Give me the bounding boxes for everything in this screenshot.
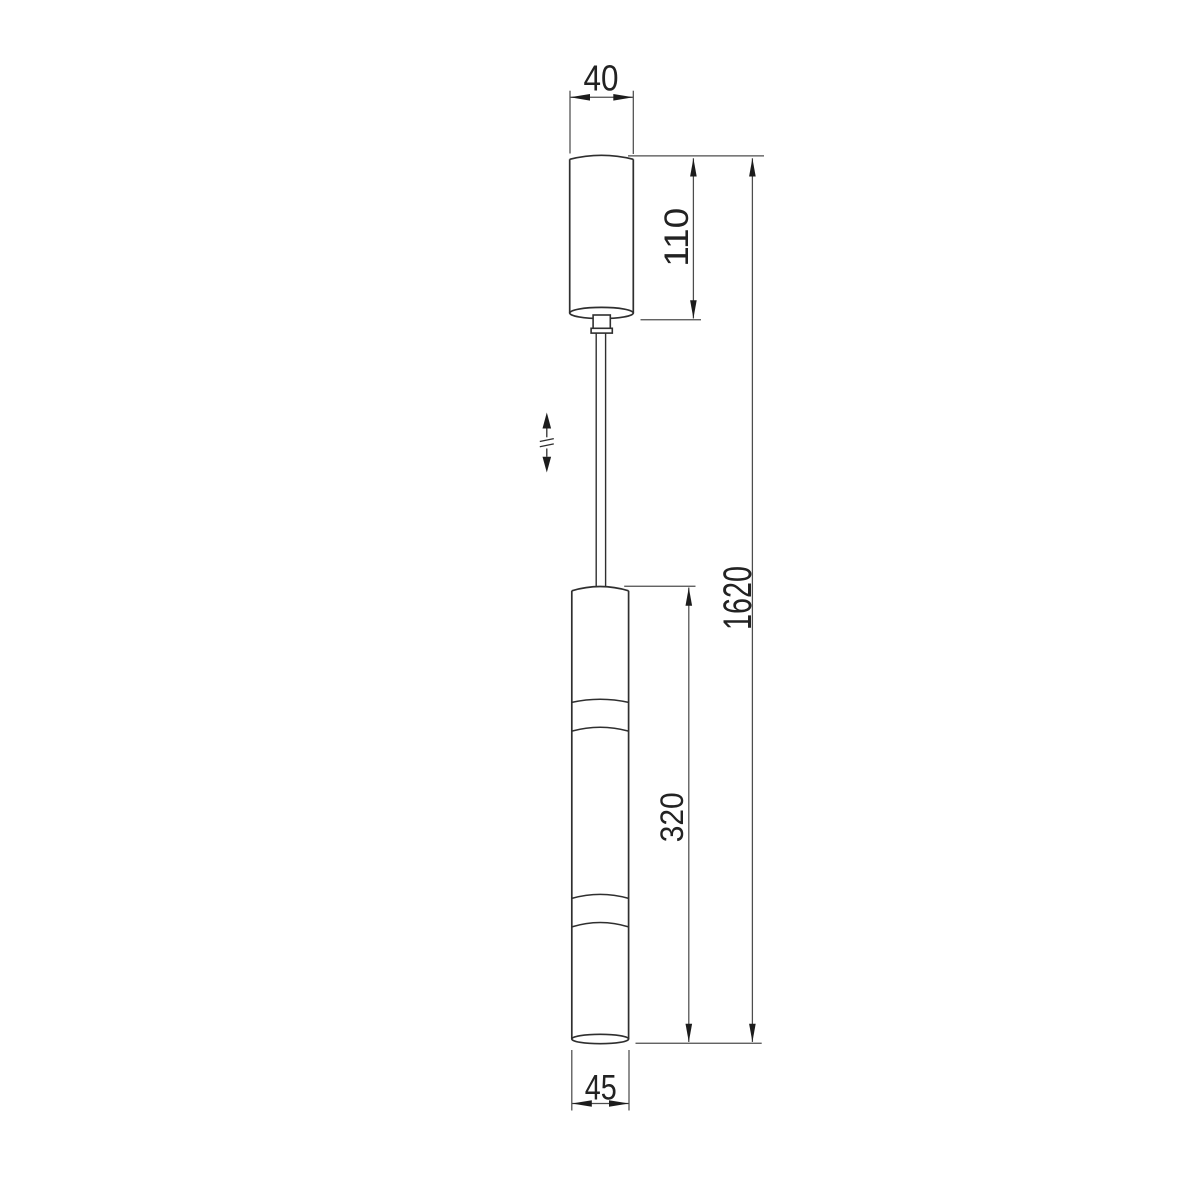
svg-text:320: 320 [654, 792, 690, 842]
svg-text:45: 45 [585, 1069, 617, 1108]
svg-text:110: 110 [658, 208, 696, 267]
svg-text:1620: 1620 [716, 566, 760, 630]
svg-text:40: 40 [584, 58, 619, 99]
